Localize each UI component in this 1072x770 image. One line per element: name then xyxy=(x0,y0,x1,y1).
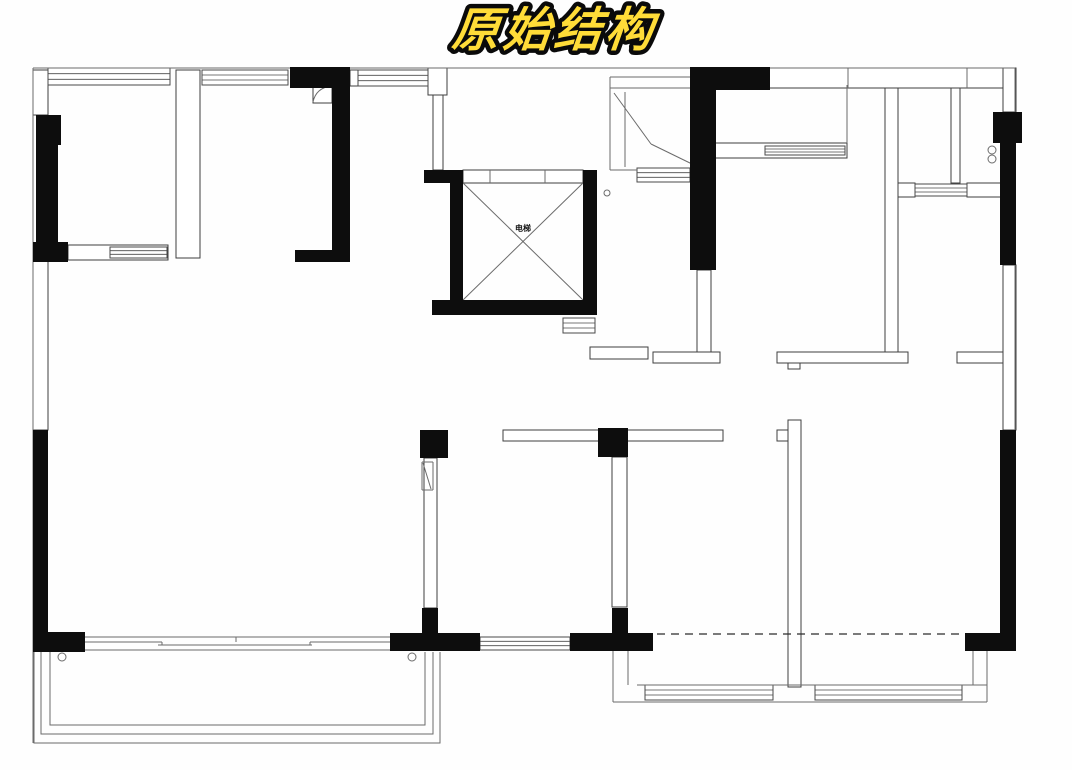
structural-wall xyxy=(690,67,770,90)
thin-wall xyxy=(777,430,788,441)
structural-wall xyxy=(450,183,463,303)
thin-wall xyxy=(33,70,48,115)
structural-wall xyxy=(420,430,448,458)
thin-wall xyxy=(898,183,915,197)
thin-wall xyxy=(788,363,800,369)
thin-wall xyxy=(951,88,960,183)
structural-wall xyxy=(36,145,58,258)
structural-wall xyxy=(390,633,480,651)
window xyxy=(110,247,167,258)
thin-wall xyxy=(777,352,908,363)
thin-wall xyxy=(1003,68,1016,112)
thin-wall xyxy=(967,183,1003,197)
structural-wall xyxy=(432,300,597,315)
structural-wall xyxy=(965,633,1016,651)
structural-wall xyxy=(612,608,628,633)
thin-wall xyxy=(590,347,648,359)
structural-wall xyxy=(598,428,628,457)
structural-wall xyxy=(583,170,597,315)
structural-wall xyxy=(33,242,68,262)
window xyxy=(637,168,690,182)
pipe-riser-circle xyxy=(604,190,610,196)
thin-wall xyxy=(1003,265,1016,430)
thin-wall xyxy=(697,270,711,352)
thin-wall xyxy=(957,352,1003,363)
floorplan-canvas: 电梯 原始结构 xyxy=(0,0,1072,770)
plan-line xyxy=(614,93,651,144)
structural-wall xyxy=(690,90,716,270)
window xyxy=(563,318,595,333)
thin-wall xyxy=(612,457,627,607)
window xyxy=(358,70,428,86)
structural-wall xyxy=(332,85,350,258)
structural-wall xyxy=(36,115,61,145)
floorplan-page: 电梯 原始结构 xyxy=(0,0,1072,770)
structural-wall xyxy=(1000,143,1016,265)
balcony-rail xyxy=(41,652,433,734)
pipe-riser-circle xyxy=(988,155,996,163)
window xyxy=(915,184,967,196)
structural-wall xyxy=(570,633,653,651)
structural-wall xyxy=(33,632,85,652)
layer-thin-walls xyxy=(33,68,1016,687)
structural-wall xyxy=(290,67,350,88)
window xyxy=(815,685,962,700)
page-title: 原始结构 xyxy=(450,3,663,58)
thin-wall xyxy=(788,420,801,687)
pipe-riser-circle xyxy=(988,146,996,154)
structural-wall xyxy=(33,430,48,632)
thin-wall xyxy=(653,352,720,363)
balcony-rail xyxy=(50,652,425,725)
window xyxy=(48,68,170,85)
window xyxy=(765,146,845,155)
thin-wall xyxy=(757,68,1015,88)
structural-wall xyxy=(424,170,463,183)
window xyxy=(202,70,288,85)
thin-wall xyxy=(463,170,583,183)
structural-wall xyxy=(1000,430,1016,651)
thin-wall xyxy=(33,260,48,430)
thin-wall xyxy=(428,68,447,95)
window xyxy=(645,685,773,700)
balcony-rail xyxy=(34,652,440,743)
thin-wall xyxy=(176,70,200,258)
elevator-shaft-label: 电梯 xyxy=(515,223,531,233)
thin-wall xyxy=(433,95,443,170)
plan-line xyxy=(651,144,692,164)
pipe-riser-circle xyxy=(58,653,66,661)
thin-wall xyxy=(424,458,437,608)
structural-wall xyxy=(422,608,438,633)
structural-wall xyxy=(295,250,350,262)
thin-wall xyxy=(885,85,898,352)
window xyxy=(480,637,570,650)
pipe-riser-circle xyxy=(408,653,416,661)
structural-wall xyxy=(993,112,1022,143)
